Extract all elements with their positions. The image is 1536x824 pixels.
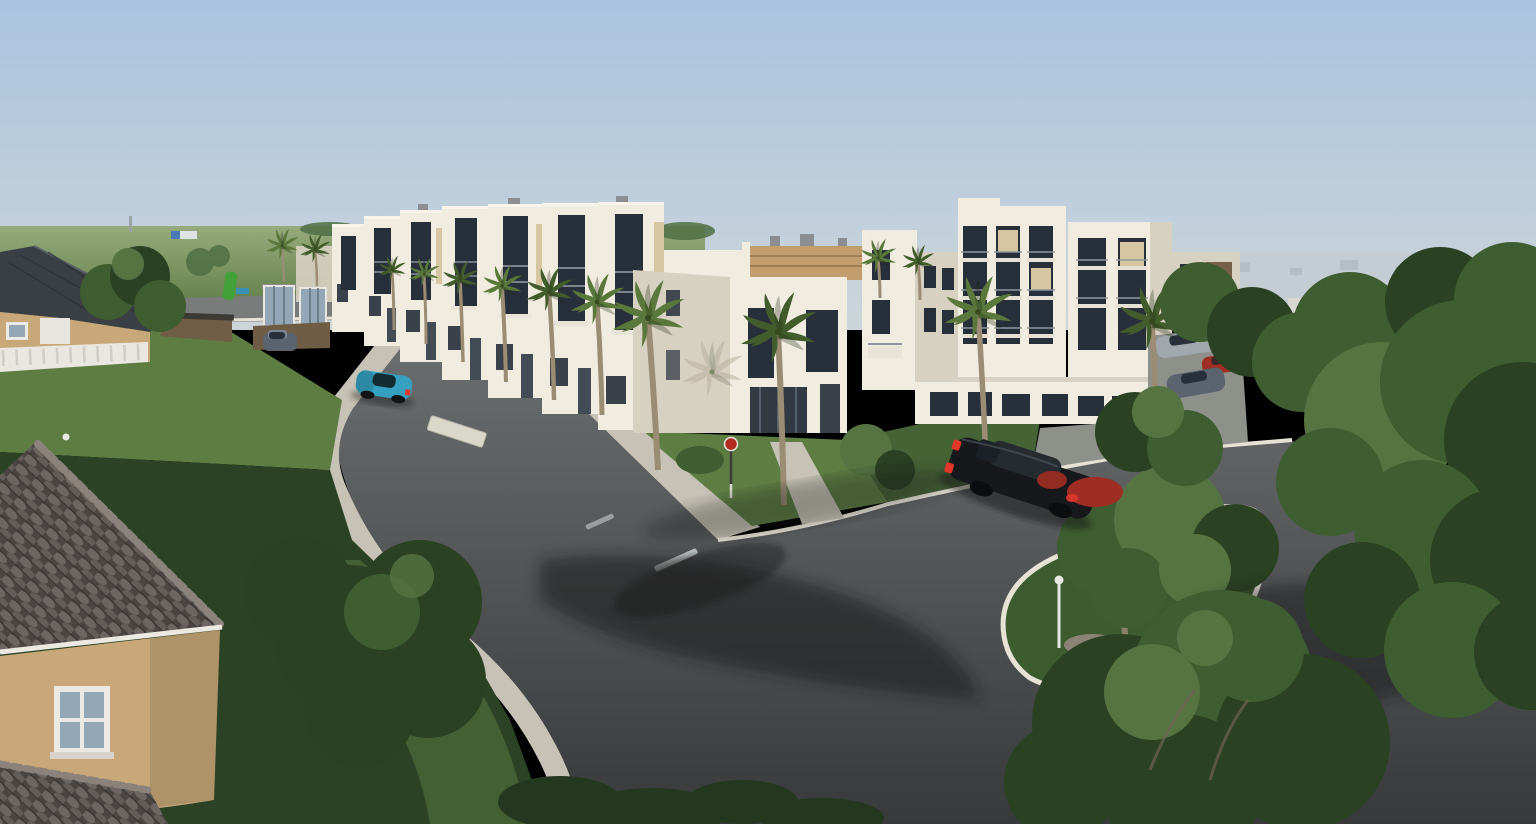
glass-pavilion [264, 286, 294, 326]
roof-antenna [63, 434, 70, 441]
townhome-unit [332, 224, 368, 332]
neighborhood-photo [0, 0, 1536, 824]
entry-door [820, 384, 840, 433]
distant-tower [129, 216, 132, 232]
rooftop-wood-accent [742, 242, 868, 280]
townhome-unit [364, 216, 404, 346]
townhome-unit [400, 210, 446, 362]
gray-sedan-distant [263, 330, 297, 351]
townhome-unit [442, 206, 492, 380]
distant-truck [171, 231, 197, 239]
house-window [50, 686, 114, 759]
townhome-unit [488, 204, 546, 398]
apartment-block-b [958, 198, 1066, 386]
glass-pavilion [300, 288, 326, 326]
garage-door [40, 318, 70, 344]
taillight [405, 389, 411, 396]
